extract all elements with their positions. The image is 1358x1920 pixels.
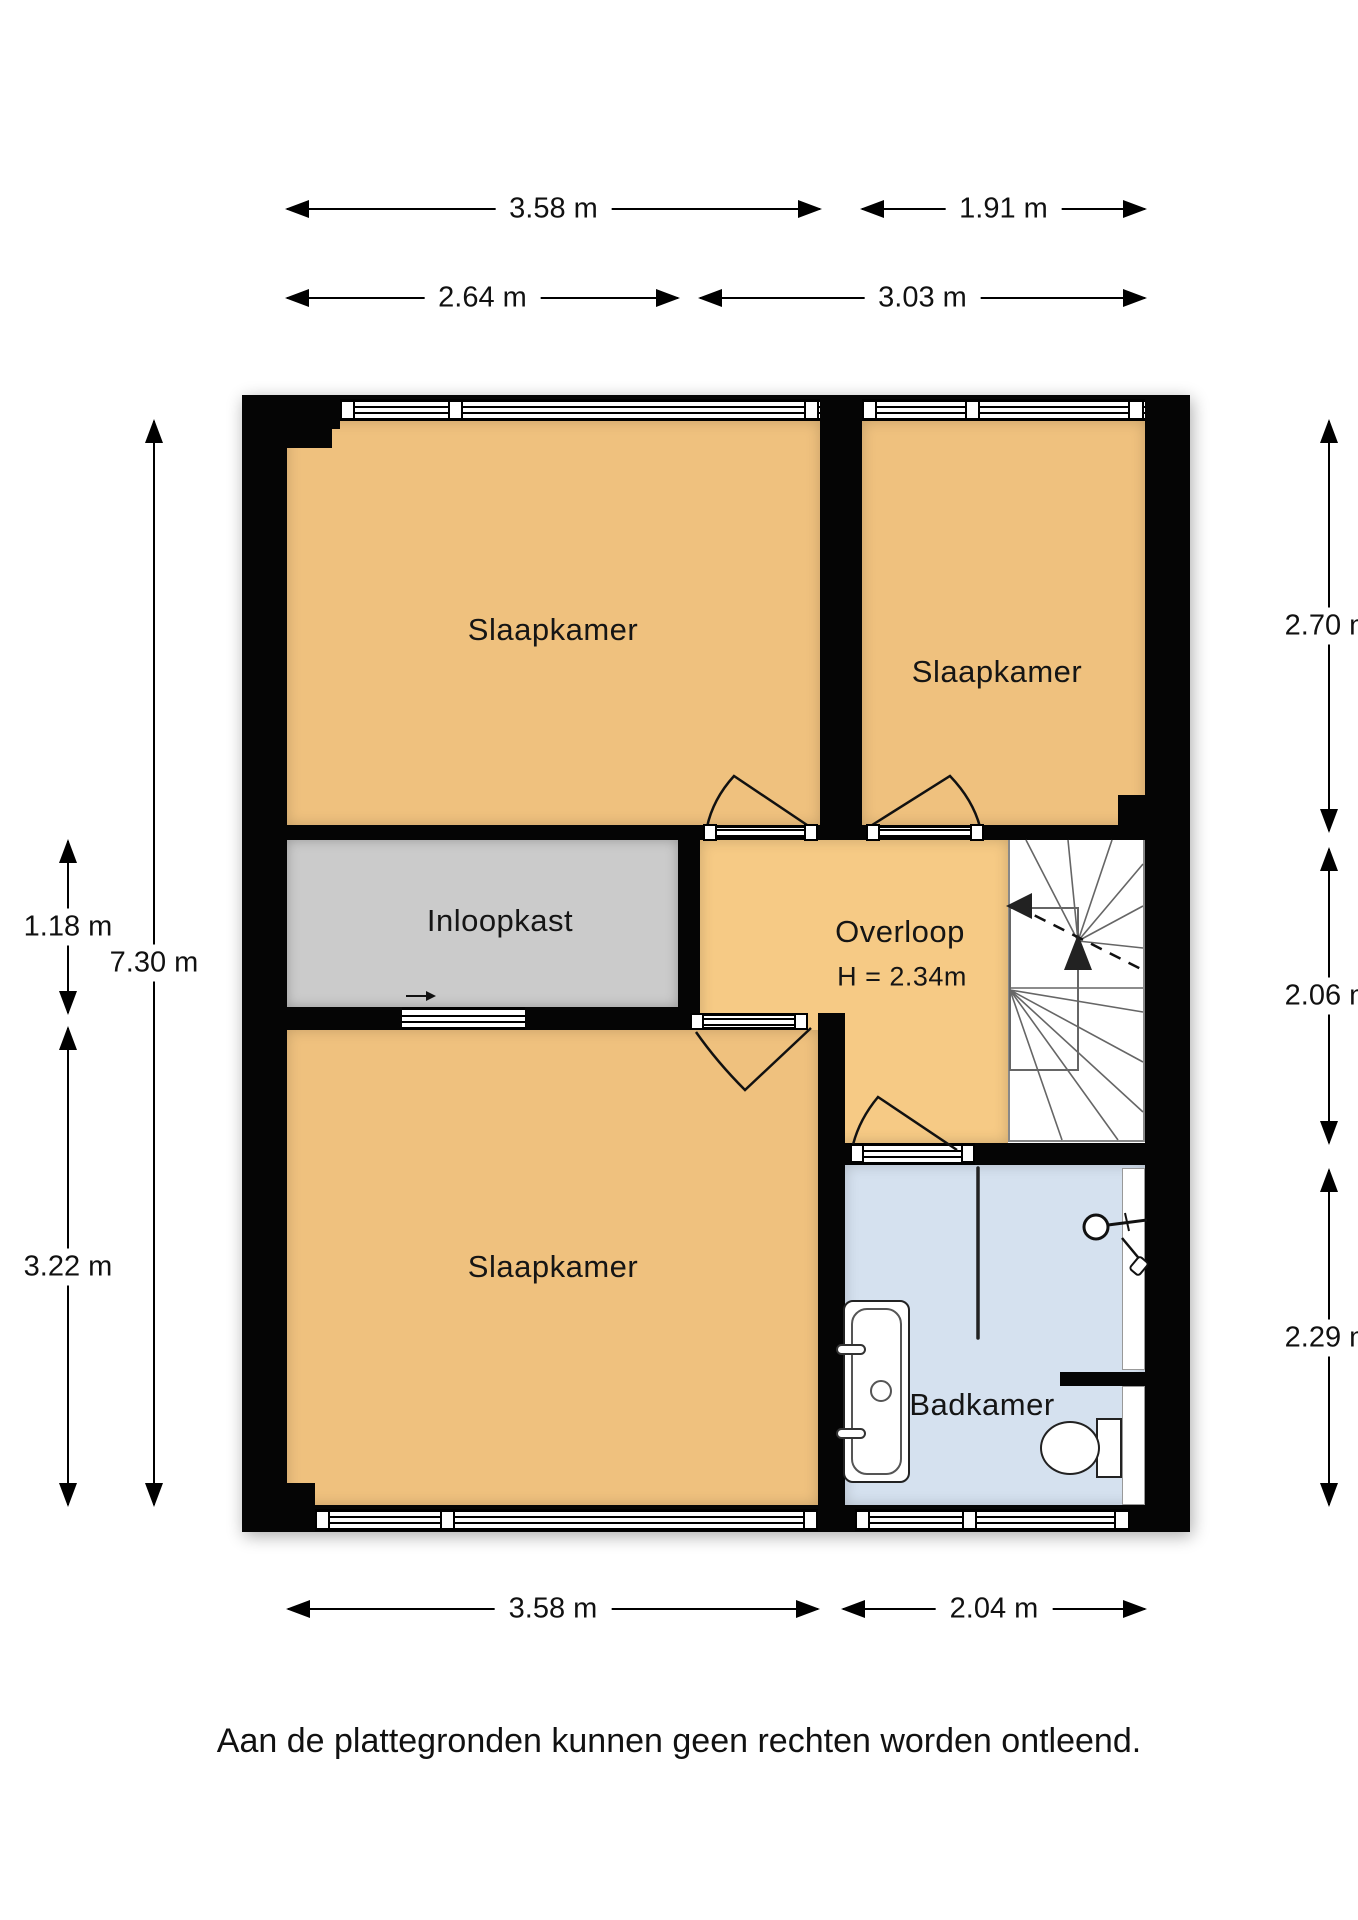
door-sill-bedroom-bottom-left bbox=[690, 1013, 808, 1030]
door-jamb bbox=[804, 824, 818, 841]
dimension-value: 3.22 m bbox=[16, 1248, 121, 1285]
label-landing-height: H = 2.34m bbox=[837, 962, 967, 993]
dimension-value: 2.06 m bbox=[1277, 978, 1358, 1015]
window-jamb bbox=[340, 400, 355, 420]
door-sill-bedroom-top-right bbox=[866, 825, 984, 840]
dimension-right-bathroom-height: 2.29 m bbox=[1328, 1170, 1330, 1505]
wall-corner-top-left bbox=[287, 421, 332, 448]
label-bedroom-bottom-left: Slaapkamer bbox=[468, 1249, 638, 1285]
dimension-value: 2.04 m bbox=[936, 1593, 1053, 1626]
window-top-left bbox=[340, 399, 820, 421]
dimension-right-landing-height: 2.06 m bbox=[1328, 849, 1330, 1143]
wall-corner-bottom-left bbox=[287, 1483, 315, 1513]
dimension-value: 7.30 m bbox=[102, 945, 207, 982]
dimension-bottom-bathroom-width: 2.04 m bbox=[843, 1608, 1145, 1610]
window-jamb bbox=[315, 1510, 330, 1530]
window-bathroom bbox=[855, 1509, 1130, 1531]
window-jamb bbox=[862, 400, 877, 420]
dimension-right-bedroom-height: 2.70 m bbox=[1328, 421, 1330, 831]
sliding-door-closet bbox=[402, 1007, 525, 1030]
window-end-cap bbox=[1128, 400, 1144, 420]
dimension-value: 3.03 m bbox=[864, 282, 981, 315]
dimension-value: 2.29 m bbox=[1277, 1319, 1358, 1356]
dimension-closet-width: 2.64 m bbox=[287, 297, 678, 299]
wall-closet-landing bbox=[678, 825, 700, 1030]
toilet-bowl bbox=[1040, 1421, 1100, 1475]
floorplan-page: Slaapkamer Slaapkamer Inloopkast Overloo… bbox=[0, 0, 1358, 1920]
dimension-left-bedroom-height: 3.22 m bbox=[67, 1028, 69, 1505]
dimension-value: 1.91 m bbox=[945, 193, 1062, 226]
window-bottom-left bbox=[315, 1509, 818, 1531]
dimension-value: 1.18 m bbox=[16, 909, 121, 946]
dimension-value: 2.70 m bbox=[1277, 608, 1358, 645]
label-bedroom-top-right: Slaapkamer bbox=[912, 654, 1082, 690]
window-divider bbox=[965, 400, 980, 420]
dimension-bottom-bedroom-width: 3.58 m bbox=[288, 1608, 818, 1610]
window-divider bbox=[448, 400, 463, 420]
label-bedroom-top-left: Slaapkamer bbox=[468, 612, 638, 648]
window-top-right bbox=[862, 399, 1145, 421]
dimension-value: 3.58 m bbox=[495, 1593, 612, 1626]
door-sill-bedroom-top-left bbox=[703, 825, 818, 840]
bathtub-faucet-handle bbox=[836, 1344, 866, 1355]
bathtub-faucet-handle bbox=[836, 1428, 866, 1439]
door-jamb bbox=[970, 824, 984, 841]
window-divider bbox=[962, 1510, 977, 1530]
wall-landing-bathroom-right bbox=[975, 1143, 1145, 1165]
staircase bbox=[1008, 838, 1145, 1142]
window-end-cap bbox=[804, 400, 819, 420]
door-jamb bbox=[850, 1144, 864, 1163]
dimension-top-right-bedroom-width: 1.91 m bbox=[862, 208, 1145, 210]
wall-step-stairwell bbox=[1118, 795, 1147, 840]
wall-stub-bathroom bbox=[1060, 1372, 1145, 1386]
door-jamb bbox=[794, 1013, 808, 1030]
window-end-cap bbox=[1114, 1510, 1130, 1530]
window-jamb bbox=[855, 1510, 870, 1530]
dimension-left-closet-height: 1.18 m bbox=[67, 841, 69, 1013]
wall-right bbox=[1145, 395, 1190, 1532]
wall-bedroom-bathroom bbox=[818, 1013, 845, 1532]
bathtub-drain bbox=[870, 1380, 892, 1402]
room-bedroom-top-right bbox=[862, 421, 1145, 825]
label-walk-in-closet: Inloopkast bbox=[427, 903, 573, 939]
wall-between-top-bedrooms bbox=[820, 395, 862, 840]
label-landing: Overloop bbox=[835, 914, 965, 950]
dimension-value: 2.64 m bbox=[424, 282, 541, 315]
wall-left bbox=[242, 395, 287, 1532]
dimension-left-total-height: 7.30 m bbox=[153, 421, 155, 1505]
label-bathroom: Badkamer bbox=[909, 1387, 1054, 1423]
window-end-cap bbox=[803, 1510, 818, 1530]
wall-niche bbox=[1122, 1386, 1145, 1505]
door-sill-bathroom bbox=[850, 1143, 975, 1165]
door-jamb bbox=[866, 824, 880, 841]
door-jamb bbox=[690, 1013, 704, 1030]
door-jamb bbox=[703, 824, 717, 841]
dimension-landing-width: 3.03 m bbox=[700, 297, 1145, 299]
shower-niche bbox=[1122, 1168, 1145, 1370]
dimension-value: 3.58 m bbox=[495, 193, 612, 226]
window-divider bbox=[440, 1510, 455, 1530]
disclaimer-text: Aan de plattegronden kunnen geen rechten… bbox=[0, 1722, 1358, 1761]
dimension-top-bedroom-width: 3.58 m bbox=[287, 208, 820, 210]
door-jamb bbox=[961, 1144, 975, 1163]
